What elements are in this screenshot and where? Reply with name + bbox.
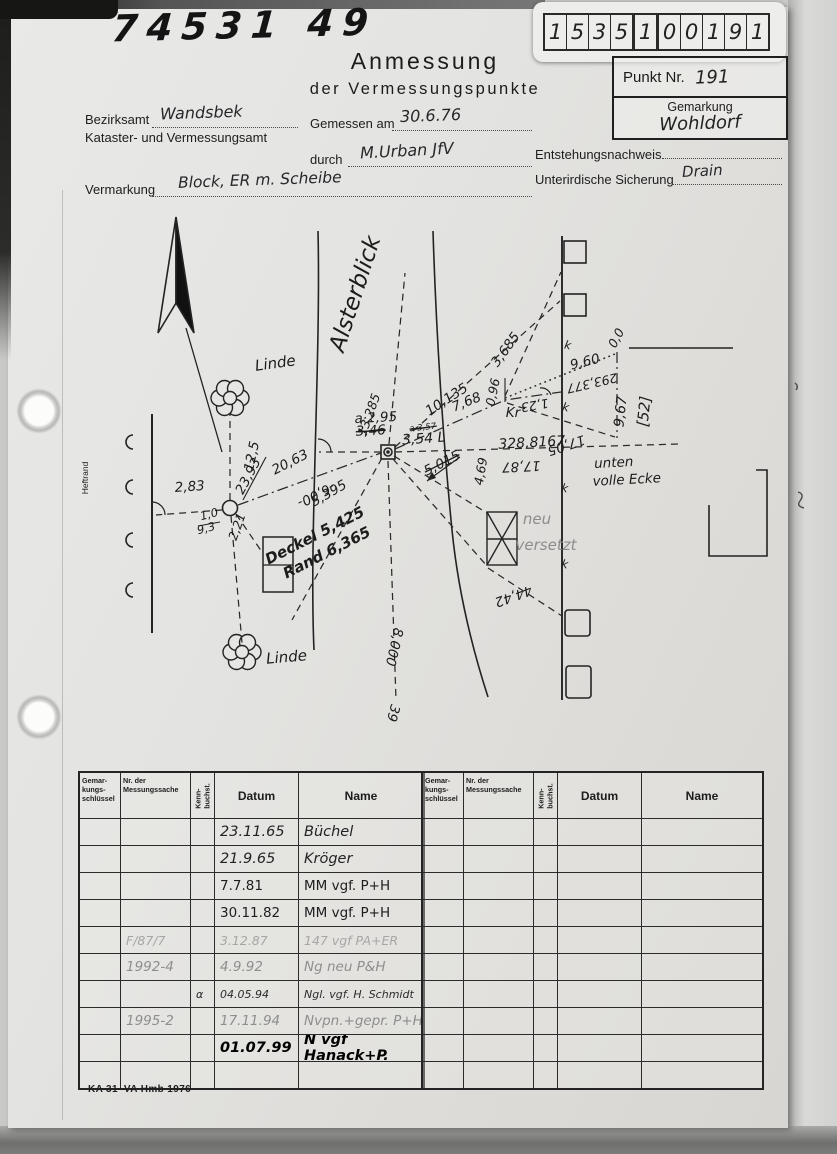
table-cell bbox=[533, 980, 557, 1007]
punch-hole-top bbox=[16, 388, 62, 434]
table-cell bbox=[80, 872, 120, 899]
table-cell bbox=[190, 818, 214, 845]
table-cell bbox=[423, 1061, 463, 1088]
table-cell bbox=[557, 1034, 641, 1061]
table-cell bbox=[557, 953, 641, 980]
table-cell bbox=[190, 1007, 214, 1034]
table-cell bbox=[423, 845, 463, 872]
table-cell bbox=[533, 1007, 557, 1034]
table-cell bbox=[423, 980, 463, 1007]
table-cell: 23.11.65 bbox=[214, 818, 298, 845]
table-cell bbox=[641, 926, 762, 953]
table-cell bbox=[641, 1034, 762, 1061]
table-cell: 147 vgf PA+ER bbox=[298, 926, 423, 953]
unterirdische-sicherung-label: Unterirdische Sicherung bbox=[535, 172, 674, 187]
digit-cell: 9 bbox=[724, 15, 746, 49]
table-cell bbox=[557, 845, 641, 872]
measurement-table-left: Gemar- kungs- schlüsselNr. der Messungss… bbox=[78, 771, 425, 1090]
table-cell bbox=[423, 926, 463, 953]
table-cell bbox=[423, 1034, 463, 1061]
paper-crease bbox=[62, 190, 63, 1120]
table-cell bbox=[120, 818, 190, 845]
table-cell bbox=[463, 872, 533, 899]
table-cell bbox=[463, 899, 533, 926]
table-cell bbox=[80, 1034, 120, 1061]
table-header: Nr. der Messungssache bbox=[120, 773, 190, 818]
table-cell bbox=[120, 845, 190, 872]
table-cell: 1995-2 bbox=[120, 1007, 190, 1034]
punkt-nr-box: Punkt Nr. 191 Gemarkung Wohldorf bbox=[612, 56, 788, 140]
table-cell: 30.11.82 bbox=[214, 899, 298, 926]
table-cell bbox=[80, 953, 120, 980]
digit-strip: 1535100191 bbox=[533, 2, 786, 62]
paper-corner-shadow bbox=[0, 0, 118, 19]
unterirdische-sicherung-value: Drain bbox=[682, 161, 723, 181]
table-cell bbox=[533, 953, 557, 980]
table-header: Datum bbox=[214, 773, 298, 818]
table-header: Datum bbox=[557, 773, 641, 818]
form-title: Anmessung bbox=[300, 48, 550, 75]
table-cell bbox=[463, 1061, 533, 1088]
table-cell bbox=[80, 818, 120, 845]
table-cell: 17.11.94 bbox=[214, 1007, 298, 1034]
table-cell bbox=[120, 872, 190, 899]
scanner-background-right bbox=[788, 0, 837, 1132]
table-cell: F/87/7 bbox=[120, 926, 190, 953]
paper-edge-left bbox=[0, 0, 11, 360]
table-cell bbox=[557, 1007, 641, 1034]
table-cell bbox=[557, 872, 641, 899]
table-cell bbox=[80, 926, 120, 953]
table-cell bbox=[557, 899, 641, 926]
table-cell bbox=[533, 818, 557, 845]
durch-label: durch bbox=[310, 152, 343, 167]
table-cell bbox=[463, 1034, 533, 1061]
table-cell: 21.9.65 bbox=[214, 845, 298, 872]
table-cell: Ng neu P&H bbox=[298, 953, 423, 980]
table-cell bbox=[80, 1007, 120, 1034]
digit-cell: 1 bbox=[702, 15, 724, 49]
digit-cell: 5 bbox=[610, 15, 632, 49]
table-cell bbox=[190, 845, 214, 872]
file-number: 74531 49 bbox=[110, 0, 378, 50]
digit-cell: 0 bbox=[680, 15, 702, 49]
table-cell: Büchel bbox=[298, 818, 423, 845]
table-cell bbox=[423, 818, 463, 845]
table-cell bbox=[80, 980, 120, 1007]
table-cell bbox=[641, 953, 762, 980]
table-cell bbox=[80, 899, 120, 926]
table-cell bbox=[120, 980, 190, 1007]
table-cell bbox=[463, 980, 533, 1007]
digit-cells: 1535100191 bbox=[543, 13, 770, 51]
table-cell: 01.07.99 bbox=[214, 1034, 298, 1061]
bezirksamt-label: Bezirksamt bbox=[85, 112, 149, 127]
table-header: Gemar- kungs- schlüssel bbox=[423, 773, 463, 818]
table-cell bbox=[533, 899, 557, 926]
table-cell bbox=[533, 845, 557, 872]
table-cell: 04.05.94 bbox=[214, 980, 298, 1007]
table-cell bbox=[190, 872, 214, 899]
digit-cell: 1 bbox=[746, 15, 768, 49]
table-cell bbox=[120, 899, 190, 926]
entstehungsnachweis-label: Entstehungsnachweis bbox=[535, 147, 661, 162]
punkt-nr-value: 191 bbox=[694, 66, 729, 88]
table-cell bbox=[641, 845, 762, 872]
table-cell bbox=[641, 1061, 762, 1088]
table-cell bbox=[190, 926, 214, 953]
table-cell bbox=[557, 980, 641, 1007]
table-cell bbox=[463, 953, 533, 980]
bezirksamt-value: Wandsbek bbox=[160, 102, 243, 124]
digit-cell: 3 bbox=[588, 15, 610, 49]
table-header: Kenn- buchst. bbox=[190, 773, 214, 818]
table-cell bbox=[641, 1007, 762, 1034]
table-header: Name bbox=[298, 773, 423, 818]
digit-cell: 0 bbox=[656, 15, 680, 49]
gemarkung-value: Wohldorf bbox=[614, 110, 787, 137]
vermarkung-label: Vermarkung bbox=[85, 182, 155, 197]
table-cell bbox=[557, 1061, 641, 1088]
table-cell: 1992-4 bbox=[120, 953, 190, 980]
table-cell bbox=[463, 845, 533, 872]
table-cell bbox=[533, 1061, 557, 1088]
table-cell: 3.12.87 bbox=[214, 926, 298, 953]
punkt-nr-label: Punkt Nr. bbox=[623, 69, 685, 86]
table-cell: Kröger bbox=[298, 845, 423, 872]
form-footer-code: KA 31–VA Hmb 1976 bbox=[88, 1084, 191, 1095]
amt-label: Kataster- und Vermessungsamt bbox=[85, 130, 267, 145]
gemessen-am-label: Gemessen am bbox=[310, 116, 395, 131]
table-cell bbox=[641, 980, 762, 1007]
table-cell: Nvpn.+gepr. P+H bbox=[298, 1007, 423, 1034]
table-cell bbox=[641, 872, 762, 899]
table-cell bbox=[641, 899, 762, 926]
table-cell bbox=[423, 953, 463, 980]
table-cell bbox=[463, 818, 533, 845]
table-cell bbox=[120, 1034, 190, 1061]
table-cell bbox=[190, 1034, 214, 1061]
form-subtitle: der Vermessungspunkte bbox=[270, 80, 580, 99]
table-cell bbox=[557, 818, 641, 845]
measurement-table-right: Gemar- kungs- schlüsselNr. der Messungss… bbox=[421, 771, 764, 1090]
scanner-background-bottom bbox=[0, 1126, 837, 1154]
digit-cell: 1 bbox=[632, 15, 656, 49]
table-cell bbox=[80, 845, 120, 872]
table-cell: 4.9.92 bbox=[214, 953, 298, 980]
punch-hole-bottom bbox=[16, 694, 62, 740]
table-header: Nr. der Messungssache bbox=[463, 773, 533, 818]
table-cell bbox=[463, 926, 533, 953]
table-cell bbox=[557, 926, 641, 953]
scanned-form: AlsterblickLindeLindeHeftrand12,52,831,0… bbox=[0, 0, 837, 1154]
table-cell bbox=[533, 872, 557, 899]
table-header: Gemar- kungs- schlüssel bbox=[80, 773, 120, 818]
table-cell: 7.7.81 bbox=[214, 872, 298, 899]
table-cell: Ngl. vgf. H. Schmidt bbox=[298, 980, 423, 1007]
table-header: Name bbox=[641, 773, 762, 818]
table-cell bbox=[423, 1007, 463, 1034]
table-cell: α bbox=[190, 980, 214, 1007]
table-cell bbox=[423, 872, 463, 899]
table-cell: MM vgf. P+H bbox=[298, 872, 423, 899]
table-cell bbox=[190, 1061, 214, 1088]
table-cell bbox=[190, 953, 214, 980]
table-cell: N vgf Hanack+P. bbox=[298, 1034, 423, 1061]
table-cell bbox=[214, 1061, 298, 1088]
table-cell bbox=[533, 926, 557, 953]
table-cell bbox=[190, 899, 214, 926]
table-cell bbox=[298, 1061, 423, 1088]
table-cell bbox=[641, 818, 762, 845]
table-cell bbox=[533, 1034, 557, 1061]
table-header: Kenn- buchst. bbox=[533, 773, 557, 818]
digit-cell: 1 bbox=[545, 15, 566, 49]
table-cell: MM vgf. P+H bbox=[298, 899, 423, 926]
gemessen-am-value: 30.6.76 bbox=[400, 105, 462, 126]
digit-cell: 5 bbox=[566, 15, 588, 49]
table-cell bbox=[423, 899, 463, 926]
table-cell bbox=[463, 1007, 533, 1034]
